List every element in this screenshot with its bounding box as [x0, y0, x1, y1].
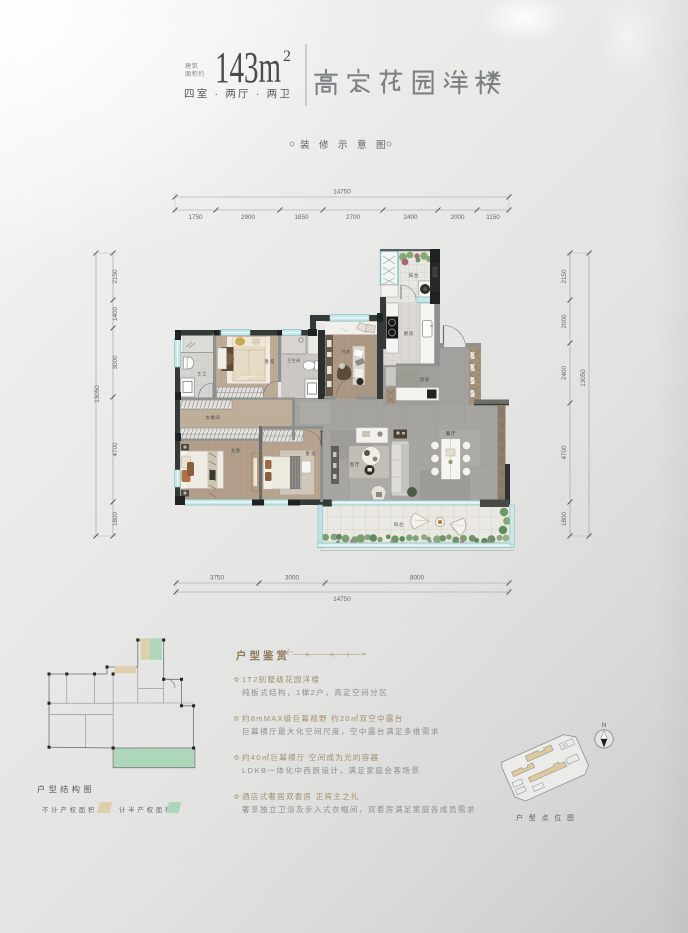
- svg-text:户型鉴赏: 户型鉴赏: [235, 649, 290, 662]
- svg-text:巨幕横厅最大化空间尺度，空中露台满足多维需求: 巨幕横厅最大化空间尺度，空中露台满足多维需求: [242, 726, 440, 736]
- svg-text:14750: 14750: [333, 189, 351, 196]
- svg-text:1400: 1400: [112, 307, 119, 322]
- svg-text:4700: 4700: [561, 445, 568, 460]
- svg-text:阳台: 阳台: [409, 272, 419, 279]
- svg-text:2000: 2000: [561, 314, 568, 329]
- svg-text:8000: 8000: [410, 575, 425, 582]
- svg-text:2: 2: [283, 48, 291, 65]
- svg-text:3750: 3750: [210, 575, 225, 582]
- svg-text:户型点位图: 户型点位图: [516, 813, 580, 822]
- svg-text:装修示意图: 装修示意图: [300, 139, 395, 151]
- svg-text:卧室: 卧室: [306, 450, 316, 457]
- svg-text:1T2别墅级花园洋楼: 1T2别墅级花园洋楼: [242, 674, 320, 684]
- svg-text:1850: 1850: [294, 214, 309, 221]
- svg-text:13050: 13050: [94, 385, 101, 403]
- svg-text:2700: 2700: [346, 214, 361, 221]
- svg-text:1750: 1750: [188, 214, 203, 221]
- svg-text:计半产权面积: 计半产权面积: [119, 805, 174, 814]
- svg-text:面积约: 面积约: [185, 70, 205, 78]
- svg-text:2400: 2400: [403, 214, 418, 221]
- svg-text:4700: 4700: [112, 442, 119, 457]
- svg-text:1800: 1800: [112, 512, 119, 527]
- svg-text:2400: 2400: [561, 366, 568, 381]
- svg-text:衣帽间: 衣帽间: [206, 414, 221, 421]
- svg-text:14750: 14750: [333, 596, 351, 603]
- svg-text:酒店式奢居双套房 正宾主之礼: 酒店式奢居双套房 正宾主之礼: [242, 791, 360, 801]
- svg-text:卧室: 卧室: [265, 358, 275, 365]
- svg-text:约8mMAX级巨幕视野 约20㎡双空中露台: 约8mMAX级巨幕视野 约20㎡双空中露台: [242, 713, 403, 723]
- svg-text:不计产权面积: 不计产权面积: [42, 805, 97, 814]
- svg-text:N: N: [602, 723, 606, 729]
- svg-text:书房: 书房: [341, 348, 351, 355]
- svg-text:纯板式结构，1梯2户，高定空间分区: 纯板式结构，1梯2户，高定空间分区: [242, 687, 388, 697]
- svg-text:卫生间: 卫生间: [287, 357, 301, 363]
- svg-text:主卧: 主卧: [231, 447, 241, 454]
- svg-text:2900: 2900: [241, 214, 256, 221]
- svg-text:1150: 1150: [486, 214, 500, 221]
- svg-text:2150: 2150: [561, 269, 568, 284]
- svg-text:3000: 3000: [285, 575, 300, 582]
- svg-text:建筑: 建筑: [185, 62, 199, 70]
- svg-text:四室 · 两厅 · 两卫: 四室 · 两厅 · 两卫: [184, 87, 292, 100]
- svg-text:阳台: 阳台: [394, 521, 404, 528]
- svg-text:2150: 2150: [112, 269, 119, 284]
- svg-text:客厅: 客厅: [350, 461, 360, 468]
- svg-text:LDKB一体化中西厨设计，满足家庭会客场景: LDKB一体化中西厨设计，满足家庭会客场景: [242, 765, 420, 775]
- svg-text:户型结构图: 户型结构图: [37, 784, 95, 794]
- svg-text:奢享独立卫浴及步入式衣帽间，双套房满足家庭各成员需求: 奢享独立卫浴及步入式衣帽间，双套房满足家庭各成员需求: [242, 804, 476, 814]
- svg-text:餐厅: 餐厅: [446, 430, 456, 437]
- svg-text:约40㎡巨幕横厅 空间成为光的容器: 约40㎡巨幕横厅 空间成为光的容器: [242, 752, 379, 762]
- svg-text:2000: 2000: [450, 214, 465, 221]
- svg-text:1800: 1800: [561, 512, 568, 527]
- svg-text:13050: 13050: [580, 369, 587, 387]
- svg-text:143m: 143m: [215, 43, 281, 92]
- svg-text:主卫: 主卫: [197, 370, 207, 376]
- svg-text:3000: 3000: [112, 355, 119, 370]
- svg-text:厨房: 厨房: [404, 330, 414, 337]
